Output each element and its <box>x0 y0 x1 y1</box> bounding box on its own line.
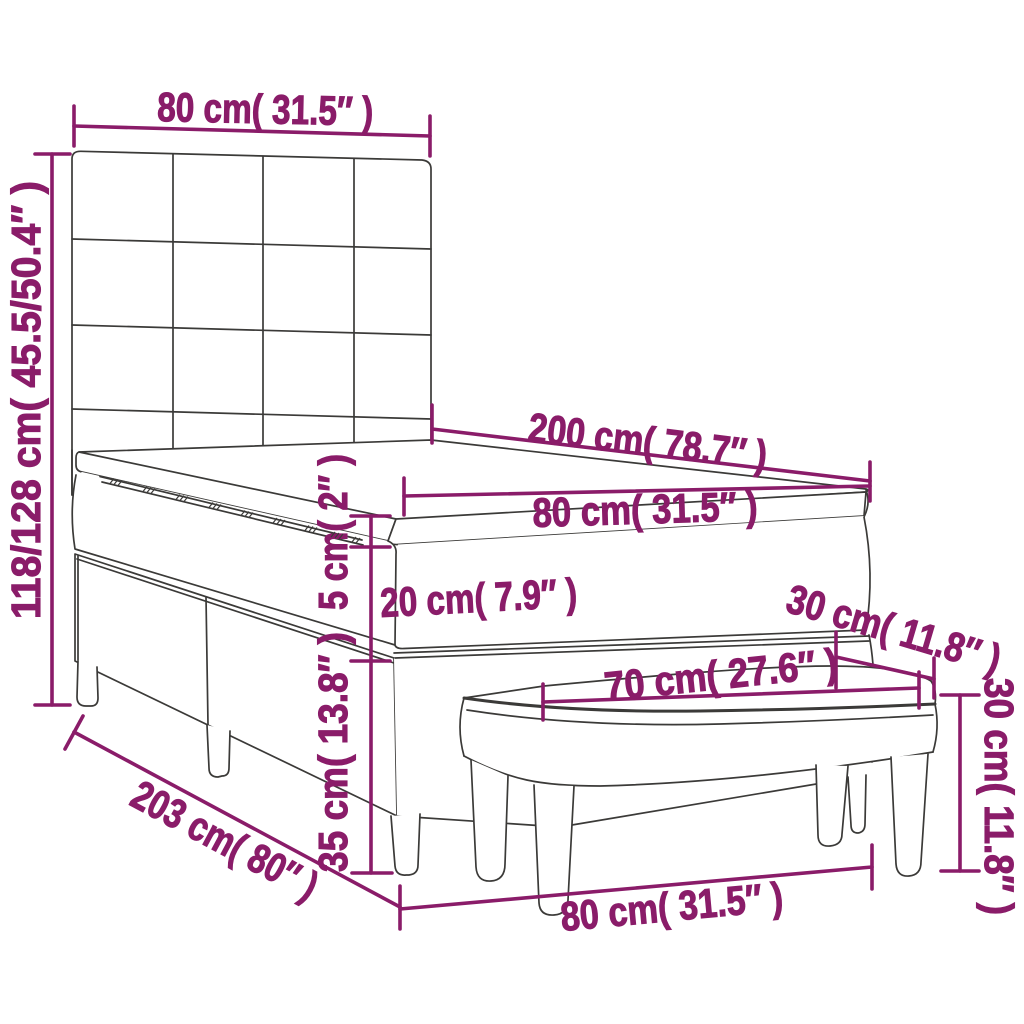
svg-text:35 cm( 13.8″ ): 35 cm( 13.8″ ) <box>310 632 356 872</box>
svg-text:5 cm( 2″ ): 5 cm( 2″ ) <box>310 454 356 610</box>
svg-text:80 cm( 31.5″ ): 80 cm( 31.5″ ) <box>532 483 758 536</box>
svg-text:118/128 cm( 45.5/50.4″ ): 118/128 cm( 45.5/50.4″ ) <box>3 181 49 619</box>
svg-text:80 cm( 31.5″ ): 80 cm( 31.5″ ) <box>157 84 374 135</box>
svg-text:30 cm( 11.8″ ): 30 cm( 11.8″ ) <box>976 678 1022 915</box>
